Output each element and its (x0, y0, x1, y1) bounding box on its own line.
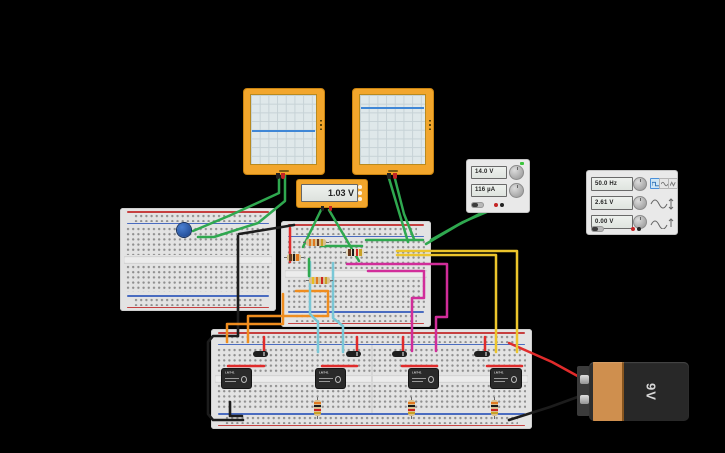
scope-footer-markings (279, 170, 289, 172)
psu-voltage-knob[interactable] (509, 165, 524, 180)
fg-negative-terminal[interactable] (637, 227, 641, 231)
oscilloscope-2[interactable] (352, 88, 434, 175)
battery-positive-terminal[interactable] (580, 375, 589, 384)
rail-holes[interactable] (225, 335, 518, 343)
rail-holes[interactable] (134, 214, 262, 222)
rail-positive-line (288, 224, 424, 226)
capacitor-blue[interactable] (177, 223, 191, 237)
multimeter-negative-probe[interactable] (321, 206, 324, 211)
fg-amplitude-knob[interactable] (633, 196, 647, 210)
rail-holes[interactable] (225, 416, 518, 424)
rail-holes[interactable] (295, 227, 417, 235)
battery-body: 9V (589, 362, 689, 421)
scope-footer-markings (388, 170, 398, 172)
rail-holes[interactable] (134, 298, 262, 306)
psu-voltage-display: 14.0 V (471, 166, 507, 179)
rail-negative-line (218, 413, 525, 415)
fg-amplitude-display: 2.61 V (591, 196, 633, 210)
psu-current-display: 116 µA (471, 184, 507, 197)
circuit-canvas[interactable]: LM741 LM741 LM741 LM741 1.03 V (0, 0, 725, 453)
board-seam (371, 345, 373, 413)
battery-9v[interactable]: 9V (577, 362, 689, 422)
multimeter-mode-icon[interactable] (358, 185, 362, 189)
rail-positive-line (127, 211, 269, 213)
rail-positive-line (127, 307, 269, 309)
oscilloscope-screen (250, 94, 317, 165)
multimeter-mode-icon[interactable] (358, 191, 362, 195)
rail-negative-line (288, 236, 424, 238)
ic-notch (335, 376, 341, 383)
multimeter[interactable]: 1.03 V (296, 179, 368, 208)
ic-chip-1[interactable]: LM741 (222, 369, 251, 388)
multimeter-display: 1.03 V (301, 184, 358, 202)
resistor-3[interactable] (343, 249, 367, 256)
psu-power-led (520, 162, 524, 165)
breadboard-center[interactable] (281, 221, 431, 327)
function-generator[interactable]: 50.0 Hz 2.61 V 0.00 V (586, 170, 678, 235)
resistor-1[interactable] (303, 239, 329, 246)
battery-label: 9V (644, 383, 659, 401)
scope-side-markings (320, 120, 323, 132)
scope-negative-pin[interactable] (387, 173, 391, 179)
fg-frequency-knob[interactable] (633, 177, 647, 191)
rail-negative-line (127, 295, 269, 297)
power-rail-top[interactable] (124, 211, 272, 224)
ic-chip-3[interactable]: LM741 (409, 369, 438, 388)
psu-power-switch[interactable] (471, 202, 484, 208)
scope-positive-pin[interactable] (393, 173, 397, 179)
fg-frequency-display: 50.0 Hz (591, 177, 633, 191)
oscilloscope-1[interactable] (243, 88, 325, 175)
resistor-2[interactable] (284, 254, 304, 261)
ic-notch (241, 376, 247, 383)
diode-1[interactable] (253, 351, 268, 357)
scope-negative-pin[interactable] (276, 173, 280, 179)
resistor-7[interactable] (491, 397, 498, 419)
multimeter-mode-icon[interactable] (358, 197, 362, 201)
scope-positive-pin[interactable] (281, 173, 285, 179)
diode-3[interactable] (392, 351, 407, 357)
breadboard-bottom[interactable] (211, 329, 532, 429)
resistor-6[interactable] (408, 397, 415, 419)
ic-chip-2[interactable]: LM741 (316, 369, 345, 388)
scope-trace (361, 107, 424, 109)
amplitude-icon (650, 197, 674, 215)
rail-negative-line (288, 311, 424, 313)
rail-positive-line (218, 425, 525, 427)
psu-negative-terminal[interactable] (500, 203, 504, 207)
terminal-rows[interactable] (126, 265, 270, 293)
ic-label: LM741 (319, 371, 329, 375)
resistor-4[interactable] (306, 277, 333, 284)
power-rail-top[interactable] (215, 332, 528, 345)
fg-power-switch[interactable] (591, 226, 604, 232)
ic-chip-4[interactable]: LM741 (491, 369, 521, 388)
power-rail-top[interactable] (285, 224, 427, 237)
multimeter-positive-probe[interactable] (329, 206, 332, 211)
diode-4[interactable] (474, 351, 490, 357)
psu-positive-terminal[interactable] (494, 203, 498, 207)
triangle-wave-icon[interactable] (668, 178, 678, 189)
power-rail-bottom[interactable] (285, 311, 427, 324)
diode-2[interactable] (346, 351, 361, 357)
breadboard-left[interactable] (120, 208, 276, 311)
battery-negative-terminal[interactable] (580, 395, 589, 404)
psu-current-knob[interactable] (509, 183, 524, 198)
power-rail-bottom[interactable] (124, 295, 272, 308)
power-rail-bottom[interactable] (215, 413, 528, 426)
fg-positive-terminal[interactable] (631, 227, 635, 231)
oscilloscope-screen (359, 94, 426, 165)
ic-notch (511, 376, 517, 383)
offset-icon (650, 216, 674, 234)
ic-label: LM741 (412, 371, 422, 375)
scope-side-markings (429, 120, 432, 132)
ic-label: LM741 (225, 371, 235, 375)
center-channel (124, 256, 272, 264)
ic-label: LM741 (494, 371, 504, 375)
rail-positive-line (288, 323, 424, 325)
terminal-rows[interactable] (126, 227, 270, 255)
ic-notch (428, 376, 434, 383)
scope-trace (252, 130, 315, 132)
power-supply[interactable]: 14.0 V 116 µA (466, 159, 530, 213)
rail-positive-line (218, 332, 525, 334)
resistor-5[interactable] (314, 397, 321, 419)
rail-negative-line (127, 223, 269, 225)
rail-holes[interactable] (295, 314, 417, 322)
